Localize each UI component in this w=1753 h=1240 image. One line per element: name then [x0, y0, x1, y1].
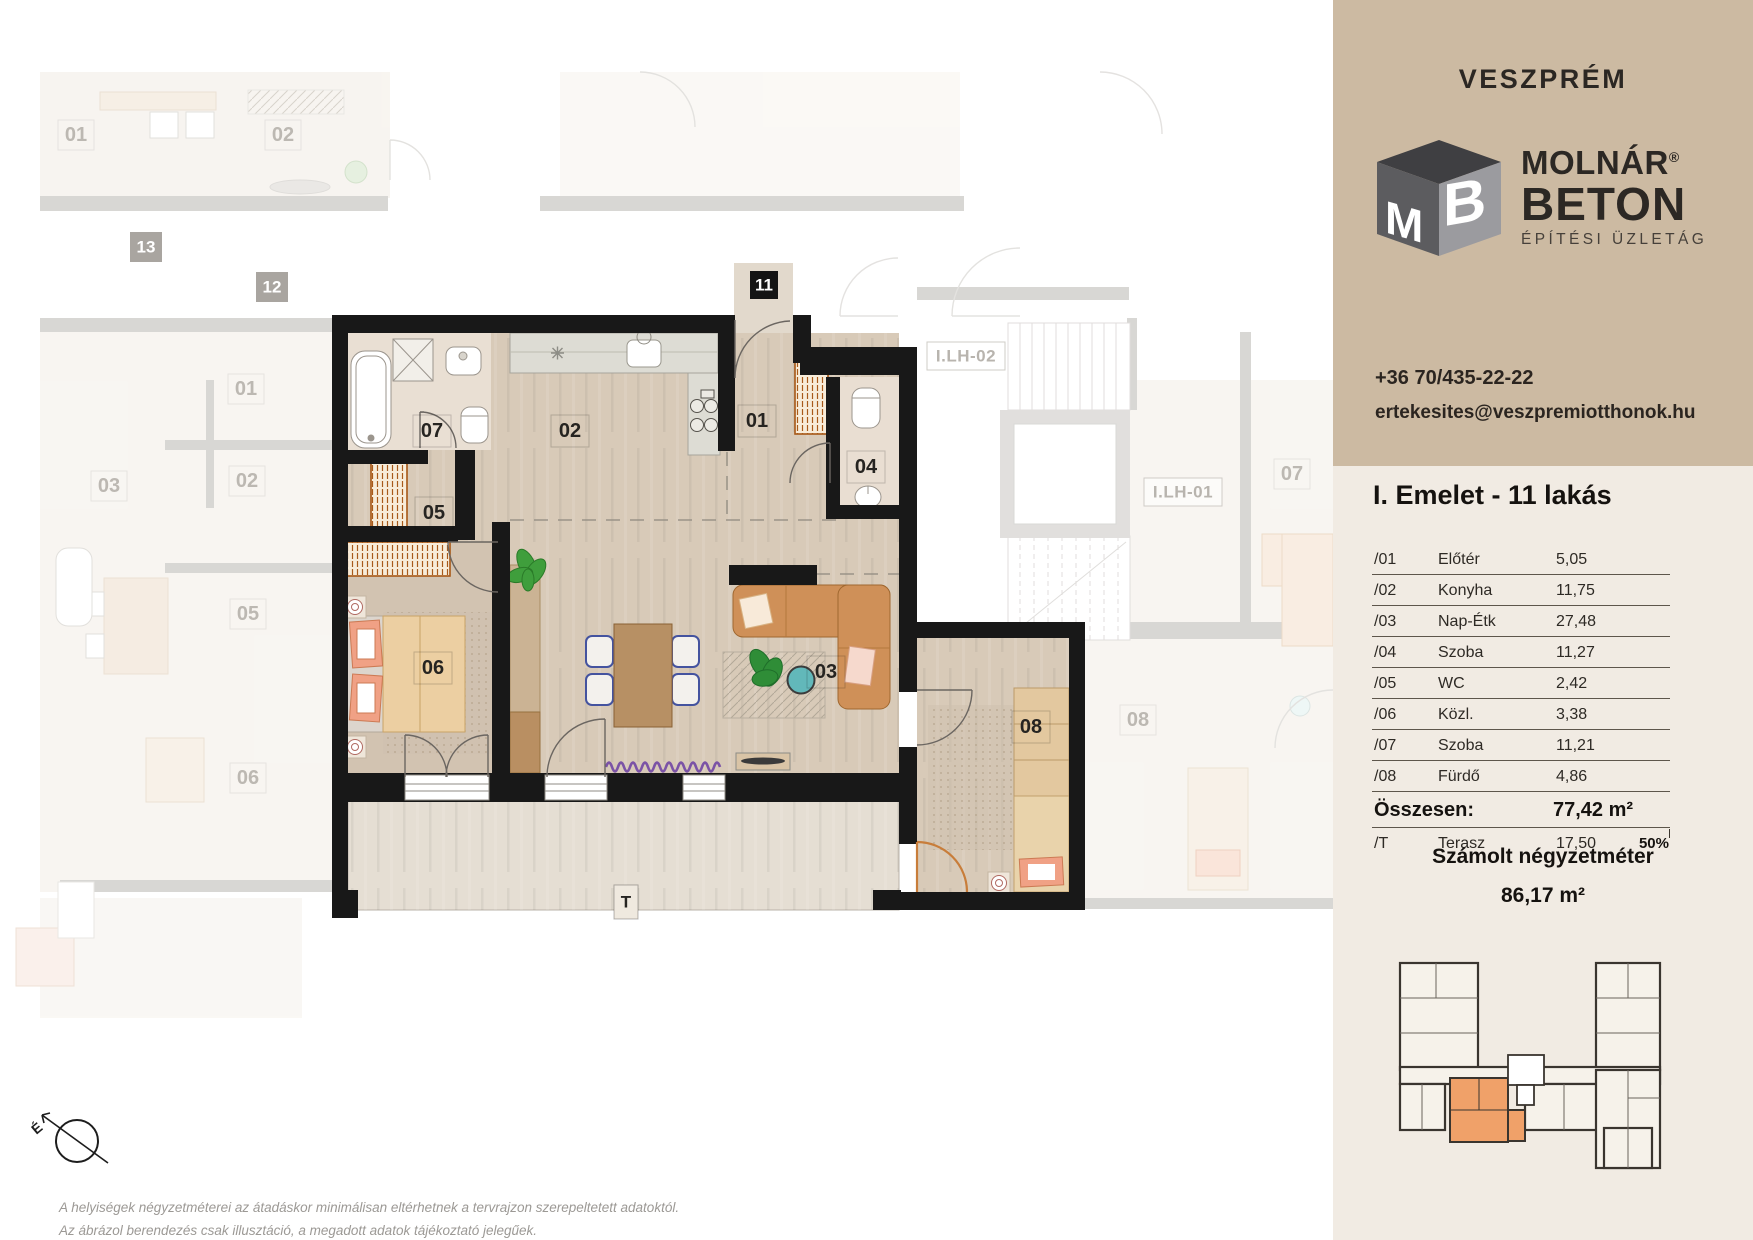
calculated-area-value: 86,17 m²: [1333, 884, 1753, 908]
sidebar-header: VESZPRÉM M B MOLNÁR® BETON ÉPÍTÉSI ÜZLET…: [1333, 0, 1753, 466]
total-value: 77,42 m²: [1553, 792, 1633, 828]
calculated-area-heading: Számolt négyzetméter: [1333, 845, 1753, 869]
flyer-page: 110705020104060308T131201020102030506070…: [0, 0, 1753, 1240]
room-number: /04: [1374, 637, 1396, 668]
toilet-07: [461, 407, 488, 443]
room-number: /08: [1374, 761, 1396, 792]
room-table-row: /01Előtér5,05: [1372, 544, 1670, 575]
room-number: /01: [1374, 544, 1396, 575]
plan-label-01: 01: [746, 410, 768, 432]
room-name: Szoba: [1438, 637, 1483, 668]
highlighted-unit: [1450, 1078, 1525, 1142]
room-table-row: /03Nap-Étk27,48: [1372, 606, 1670, 637]
room-name: Szoba: [1438, 730, 1483, 761]
logo-tagline: ÉPÍTÉSI ÜZLETÁG: [1521, 232, 1707, 248]
plan-label-13: 13: [137, 238, 156, 257]
plan-label-05: 05: [423, 502, 445, 524]
disclaimer-line1: A helyiségek négyzetméterei az átadáskor…: [59, 1196, 679, 1219]
plan-label-08: 08: [1020, 716, 1042, 738]
company-logo-text: MOLNÁR® BETON ÉPÍTÉSI ÜZLETÁG: [1521, 146, 1707, 248]
room-area: 27,48: [1556, 606, 1596, 637]
toilet-04: [852, 388, 880, 428]
tv-board: [736, 753, 790, 770]
room-name: Előtér: [1438, 544, 1480, 575]
plan-label-03: 03: [98, 475, 120, 497]
logo-name-line2: BETON: [1521, 181, 1707, 227]
room-table-row: /04Szoba11,27: [1372, 637, 1670, 668]
room-table-row: /06Közl.3,38: [1372, 699, 1670, 730]
contact-block: +36 70/435-22-22 ertekesites@veszpremiot…: [1375, 367, 1696, 424]
plan-label-06: 06: [237, 767, 259, 789]
logo-name-line1: MOLNÁR®: [1521, 146, 1707, 179]
hall-cabinet: [510, 712, 540, 773]
room-area: 5,05: [1556, 544, 1587, 575]
room-area: 2,42: [1556, 668, 1587, 699]
star-symbol: [551, 347, 564, 360]
room-area: 11,75: [1556, 575, 1595, 606]
info-sidebar: VESZPRÉM M B MOLNÁR® BETON ÉPÍTÉSI ÜZLET…: [1333, 0, 1753, 1240]
plan-label-04: 04: [855, 456, 878, 478]
room-name: Fürdő: [1438, 761, 1480, 792]
room-area: 11,21: [1556, 730, 1595, 761]
plan-label-11: 11: [755, 276, 773, 295]
disclaimer-text: A helyiségek négyzetméterei az átadáskor…: [59, 1196, 679, 1240]
plan-label-i.lh-01: I.LH-01: [1153, 483, 1213, 502]
room-name: Nap-Étk: [1438, 606, 1496, 637]
room-table: /01Előtér5,05/02Konyha11,75/03Nap-Étk27,…: [1372, 544, 1670, 860]
elevator-shaft: [1000, 410, 1130, 538]
logo-letter-m: M: [1385, 191, 1423, 253]
company-logo-cube-icon: M B: [1377, 138, 1509, 260]
floor-title: I. Emelet - 11 lakás: [1373, 480, 1612, 511]
room-number: /07: [1374, 730, 1396, 761]
room-name: WC: [1438, 668, 1465, 699]
bathtub: [351, 351, 391, 448]
plan-label-07: 07: [421, 420, 443, 442]
room-table-rows: /01Előtér5,05/02Konyha11,75/03Nap-Étk27,…: [1372, 544, 1670, 792]
contact-email: ertekesites@veszpremiotthonok.hu: [1375, 402, 1696, 424]
plan-label-02: 02: [559, 420, 581, 442]
wardrobe-08: [1014, 688, 1069, 796]
room-area: 4,86: [1556, 761, 1587, 792]
calculated-area-block: Számolt négyzetméter 86,17 m²: [1333, 845, 1753, 908]
plan-label-07: 07: [1281, 463, 1303, 485]
total-label: Összesen:: [1374, 792, 1474, 828]
total-row: Összesen: 77,42 m²: [1372, 792, 1670, 828]
room-number: /06: [1374, 699, 1396, 730]
plan-label-01: 01: [65, 124, 87, 146]
logo-letter-b: B: [1443, 164, 1486, 239]
floor-plan: 110705020104060308T131201020102030506070…: [0, 0, 1333, 1240]
room-table-row: /07Szoba11,21: [1372, 730, 1670, 761]
building-overview-miniplan: [1396, 958, 1671, 1172]
room-number: /03: [1374, 606, 1396, 637]
plan-label-12: 12: [263, 278, 282, 297]
plan-label-03: 03: [815, 661, 837, 683]
room-name: Közl.: [1438, 699, 1474, 730]
room-table-row: /08Fürdő4,86: [1372, 761, 1670, 792]
contact-phone: +36 70/435-22-22: [1375, 367, 1696, 390]
room-area: 3,38: [1556, 699, 1587, 730]
room-table-row: /02Konyha11,75: [1372, 575, 1670, 606]
room-number: /05: [1374, 668, 1396, 699]
plan-label-t: T: [621, 893, 632, 912]
registered-mark: ®: [1669, 149, 1680, 165]
plan-label-02: 02: [272, 124, 294, 146]
coffee-table: [788, 667, 815, 694]
disclaimer-line2: Az ábrázol berendezés csak illusztáció, …: [59, 1219, 679, 1240]
room-number: /02: [1374, 575, 1396, 606]
city-title: VESZPRÉM: [1333, 64, 1753, 95]
dining-table: [614, 624, 672, 727]
room-table-row: /05WC2,42: [1372, 668, 1670, 699]
plan-label-08: 08: [1127, 709, 1149, 731]
room-area: 11,27: [1556, 637, 1595, 668]
room-name: Konyha: [1438, 575, 1492, 606]
sink-07: [446, 347, 481, 375]
plan-label-i.lh-02: I.LH-02: [936, 347, 996, 366]
plan-label-06: 06: [422, 657, 444, 679]
plan-label-02: 02: [236, 470, 258, 492]
plan-label-05: 05: [237, 603, 259, 625]
plan-label-01: 01: [235, 378, 257, 400]
